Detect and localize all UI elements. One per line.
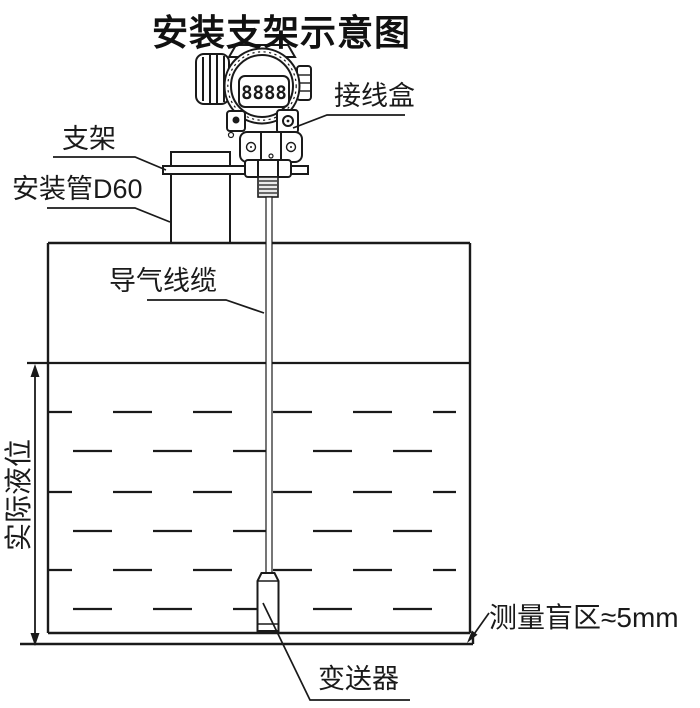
liquid-dashes bbox=[48, 412, 456, 609]
process-connection-icon bbox=[240, 132, 302, 162]
transmitter-probe-shape bbox=[258, 573, 279, 631]
lcd-digits: 8888 bbox=[241, 82, 287, 104]
threaded-stub-icon bbox=[258, 177, 278, 197]
tank-outline bbox=[20, 243, 473, 644]
blind-zone-label: 测量盲区≈5mm bbox=[489, 603, 679, 634]
hex-nut-icon bbox=[245, 160, 291, 177]
air-guide-cable-label: 导气线缆 bbox=[109, 267, 217, 297]
actual-liquid-level-label: 实际液位 bbox=[0, 439, 37, 551]
bracket-label: 支架 bbox=[62, 125, 116, 155]
cable-gland-icon bbox=[196, 54, 229, 104]
junction-box-label: 接线盒 bbox=[334, 82, 415, 112]
diagram-title: 安装支架示意图 bbox=[152, 4, 411, 56]
schematic-diagram: 8888 安装支架示意图 接线盒 支架 安装管D60 导气线缆 实际液位 测量盲… bbox=[0, 0, 700, 708]
mounting-pipe-label: 安装管D60 bbox=[12, 175, 143, 205]
air-guide-cable-shape bbox=[266, 197, 272, 573]
transmitter-label: 变送器 bbox=[318, 665, 399, 695]
